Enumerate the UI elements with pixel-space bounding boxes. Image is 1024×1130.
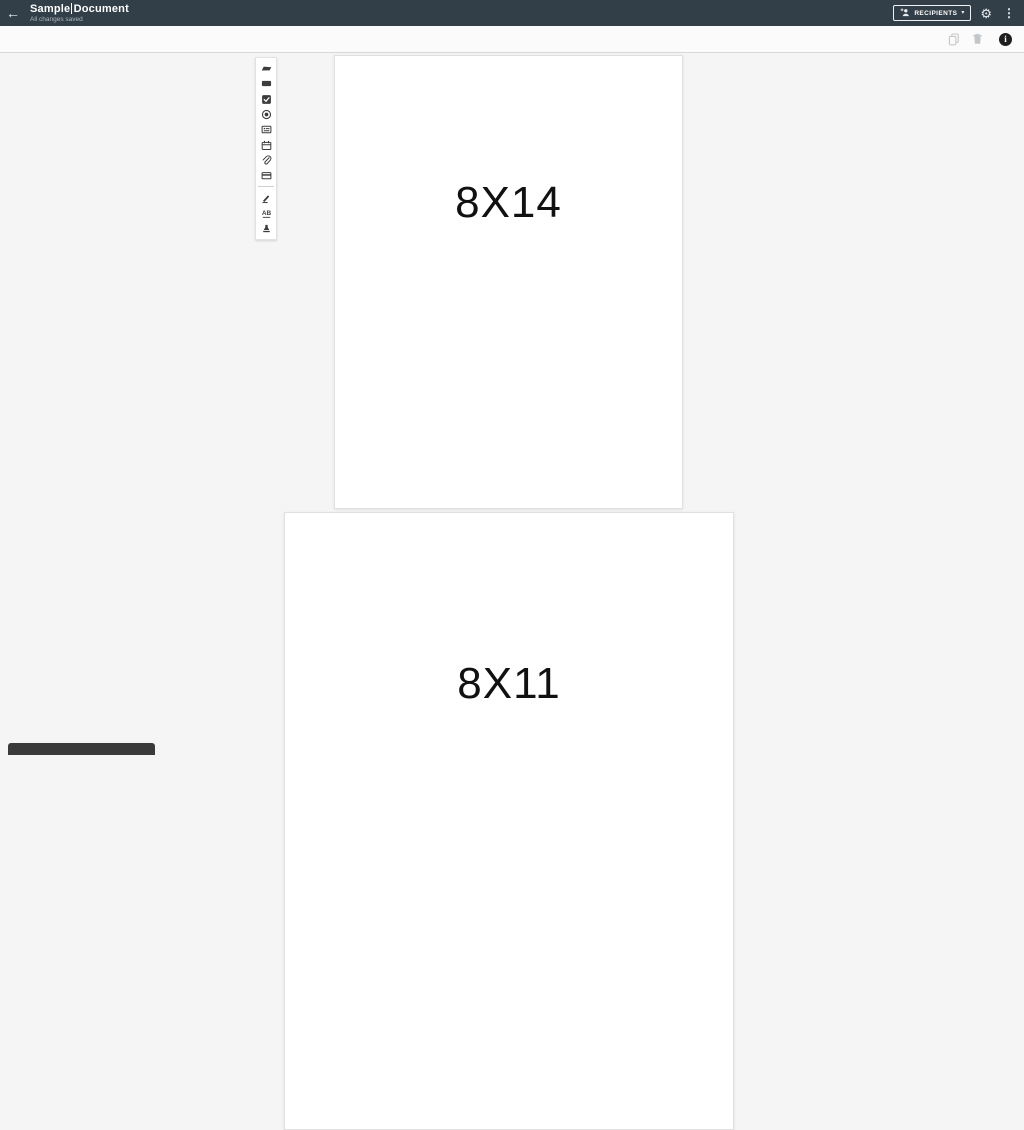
document-toolbar: i xyxy=(0,26,1024,53)
copy-icon xyxy=(948,33,960,46)
info-icon: i xyxy=(1004,34,1007,44)
initials-icon: AB xyxy=(261,208,272,219)
person-add-icon xyxy=(900,4,910,22)
bottom-control-bar[interactable] xyxy=(8,743,155,755)
info-button[interactable]: i xyxy=(999,33,1012,46)
checkbox-icon xyxy=(261,94,272,105)
tool-date[interactable] xyxy=(255,137,277,152)
more-menu-button[interactable]: ⋮ xyxy=(1001,7,1017,19)
tool-radio[interactable] xyxy=(255,107,277,122)
page-size-label: 8X11 xyxy=(285,513,733,709)
signature-pen-icon xyxy=(261,193,272,204)
back-button[interactable]: ← xyxy=(0,0,26,26)
tool-card[interactable] xyxy=(255,168,277,183)
tool-text-tag[interactable] xyxy=(255,61,277,76)
stamp-icon xyxy=(261,223,272,234)
settings-button[interactable]: ⚙ xyxy=(980,7,992,20)
tool-attachment[interactable] xyxy=(255,153,277,168)
chevron-down-icon: ▾ xyxy=(961,10,964,16)
paperclip-icon xyxy=(261,155,272,166)
save-status: All changes saved xyxy=(30,16,129,24)
document-title-input[interactable]: Sample Document xyxy=(30,3,129,15)
dropdown-icon xyxy=(261,124,272,135)
document-page-1[interactable]: 8X14 xyxy=(334,55,683,509)
tool-stamp[interactable] xyxy=(255,221,277,236)
tool-initials[interactable]: AB xyxy=(255,206,277,221)
text-cursor xyxy=(71,3,72,14)
trash-icon xyxy=(972,33,983,45)
textbox-icon xyxy=(261,78,272,89)
delete-button[interactable] xyxy=(970,32,984,46)
kebab-menu-icon: ⋮ xyxy=(1003,6,1015,20)
duplicate-button[interactable] xyxy=(947,32,961,46)
document-page-2[interactable]: 8X11 xyxy=(284,512,734,1130)
radio-icon xyxy=(261,109,272,120)
palette-divider xyxy=(258,186,274,187)
document-title-block: Sample Document All changes saved xyxy=(30,3,129,24)
tool-textbox[interactable] xyxy=(255,76,277,91)
page-size-label: 8X14 xyxy=(335,56,682,228)
app-bar: ← Sample Document All changes saved RECI… xyxy=(0,0,1024,26)
field-palette: AB xyxy=(255,57,277,240)
recipients-button[interactable]: RECIPIENTS ▾ xyxy=(893,5,971,21)
tool-signature[interactable] xyxy=(255,190,277,205)
tool-checkbox[interactable] xyxy=(255,92,277,107)
app-bar-actions: RECIPIENTS ▾ ⚙ ⋮ xyxy=(893,5,1024,21)
text-tag-icon xyxy=(261,63,272,74)
back-arrow-icon: ← xyxy=(6,5,20,21)
recipients-label: RECIPIENTS xyxy=(914,10,957,17)
tool-dropdown[interactable] xyxy=(255,122,277,137)
initials-glyph: AB xyxy=(261,210,271,217)
gear-icon: ⚙ xyxy=(980,6,992,21)
calendar-icon xyxy=(261,140,272,151)
document-canvas: AB 8X14 8X11 xyxy=(0,53,1024,749)
card-icon xyxy=(261,170,272,181)
